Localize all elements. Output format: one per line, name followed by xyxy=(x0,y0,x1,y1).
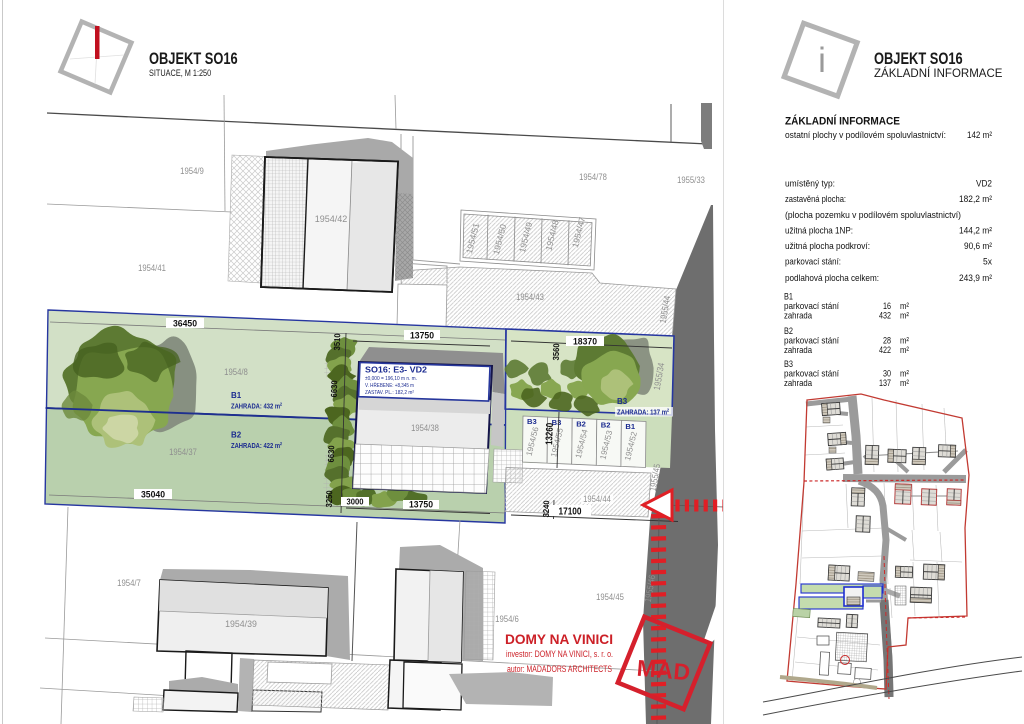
svg-text:ZAHRADA: 137 m²: ZAHRADA: 137 m² xyxy=(617,408,669,417)
svg-text:ZAHRADA: 432 m²: ZAHRADA: 432 m² xyxy=(231,402,282,411)
svg-text:3000: 3000 xyxy=(347,497,364,507)
svg-text:5x: 5x xyxy=(983,257,992,267)
svg-text:422: 422 xyxy=(879,345,891,355)
svg-text:ZASTAV. PL.: 182,2 m²: ZASTAV. PL.: 182,2 m² xyxy=(365,390,414,396)
svg-text:±0,000 = 196,10 m n. m.: ±0,000 = 196,10 m n. m. xyxy=(365,376,417,382)
svg-text:B2: B2 xyxy=(784,326,793,336)
svg-text:zahrada: zahrada xyxy=(784,378,813,388)
svg-text:i: i xyxy=(818,41,826,80)
svg-text:(plocha pozemku v podílovém sp: (plocha pozemku v podílovém spoluvlastni… xyxy=(785,210,961,220)
svg-text:B2: B2 xyxy=(231,431,242,440)
svg-text:VD2: VD2 xyxy=(976,179,992,189)
svg-text:B2: B2 xyxy=(576,419,586,428)
svg-text:B3: B3 xyxy=(527,417,537,426)
svg-text:17100: 17100 xyxy=(559,506,582,518)
svg-text:1954/42: 1954/42 xyxy=(315,214,348,224)
svg-text:m²: m² xyxy=(900,301,909,311)
svg-text:90,6 m²: 90,6 m² xyxy=(964,241,992,251)
svg-text:13750: 13750 xyxy=(409,500,433,510)
svg-text:30: 30 xyxy=(883,369,891,379)
svg-text:ZAHRADA: 422 m²: ZAHRADA: 422 m² xyxy=(231,441,282,450)
svg-text:m²: m² xyxy=(900,345,909,355)
svg-text:1954/6: 1954/6 xyxy=(495,614,519,624)
svg-text:13750: 13750 xyxy=(410,331,434,341)
svg-text:B3: B3 xyxy=(784,359,793,369)
svg-text:B2: B2 xyxy=(601,421,611,430)
svg-text:13260: 13260 xyxy=(544,422,556,445)
svg-text:1954/39: 1954/39 xyxy=(225,619,257,629)
svg-text:DOMY NA VINICI: DOMY NA VINICI xyxy=(505,632,613,647)
svg-text:m²: m² xyxy=(900,336,909,346)
svg-text:zahrada: zahrada xyxy=(784,345,813,355)
svg-text:parkovací stání:: parkovací stání: xyxy=(785,257,841,267)
svg-text:35040: 35040 xyxy=(141,490,165,500)
svg-text:B1: B1 xyxy=(784,292,793,302)
svg-text:1954/9: 1954/9 xyxy=(180,166,204,176)
svg-text:zastavěná plocha:: zastavěná plocha: xyxy=(785,194,846,204)
svg-text:1955/33: 1955/33 xyxy=(677,175,705,185)
svg-text:6630: 6630 xyxy=(326,445,337,463)
svg-text:parkovací stání: parkovací stání xyxy=(784,301,839,311)
svg-text:432: 432 xyxy=(879,311,891,321)
svg-text:1954/44: 1954/44 xyxy=(583,494,611,504)
svg-text:zahrada: zahrada xyxy=(784,311,813,321)
svg-text:ZÁKLADNÍ INFORMACE: ZÁKLADNÍ INFORMACE xyxy=(785,115,900,128)
svg-text:m²: m² xyxy=(900,311,909,321)
svg-text:3250: 3250 xyxy=(324,490,335,508)
svg-text:182,2 m²: 182,2 m² xyxy=(959,194,992,204)
svg-text:1954/8: 1954/8 xyxy=(224,367,248,377)
svg-text:3560: 3560 xyxy=(551,343,562,361)
svg-text:1954/41: 1954/41 xyxy=(138,263,166,273)
svg-text:V. HŘEBENE: +8,345 m: V. HŘEBENE: +8,345 m xyxy=(365,381,415,389)
svg-text:ostatní plochy v podílovém spo: ostatní plochy v podílovém spoluvlastnic… xyxy=(785,130,946,140)
svg-text:6630: 6630 xyxy=(329,380,340,398)
svg-text:užitná plocha 1NP:: užitná plocha 1NP: xyxy=(785,226,853,236)
svg-text:1954/38: 1954/38 xyxy=(411,423,439,433)
svg-text:B1: B1 xyxy=(231,391,242,400)
svg-text:28: 28 xyxy=(883,336,891,346)
svg-text:36450: 36450 xyxy=(173,319,197,329)
svg-text:1954/7: 1954/7 xyxy=(117,578,141,588)
svg-text:MAD: MAD xyxy=(636,655,692,686)
svg-text:144,2 m²: 144,2 m² xyxy=(959,226,992,236)
svg-text:umístěný typ:: umístěný typ: xyxy=(785,179,835,189)
svg-text:podlahová plocha celkem:: podlahová plocha celkem: xyxy=(785,273,879,283)
svg-text:18370: 18370 xyxy=(573,337,597,347)
svg-text:m²: m² xyxy=(900,378,909,388)
svg-text:autor: MADADORS ARCHITECTS: autor: MADADORS ARCHITECTS xyxy=(507,664,612,674)
svg-text:m²: m² xyxy=(900,369,909,379)
svg-text:3510: 3510 xyxy=(332,333,343,351)
svg-text:parkovací stání: parkovací stání xyxy=(784,336,839,346)
svg-text:137: 137 xyxy=(879,378,891,388)
svg-text:B3: B3 xyxy=(617,397,628,406)
svg-text:243,9 m²: 243,9 m² xyxy=(959,273,992,283)
svg-text:1954/78: 1954/78 xyxy=(579,172,607,182)
svg-text:1954/45: 1954/45 xyxy=(596,592,624,602)
svg-text:1954/43: 1954/43 xyxy=(516,292,544,302)
svg-text:parkovací stání: parkovací stání xyxy=(784,369,839,379)
svg-text:investor: DOMY NA VINICI, s. r: investor: DOMY NA VINICI, s. r. o. xyxy=(506,649,613,659)
svg-text:1954/37: 1954/37 xyxy=(169,447,197,457)
svg-text:142 m²: 142 m² xyxy=(967,130,992,140)
svg-text:16: 16 xyxy=(883,301,891,311)
svg-text:užitná plocha podkroví:: užitná plocha podkroví: xyxy=(785,241,870,251)
svg-text:SO16: E3- VD2: SO16: E3- VD2 xyxy=(365,365,427,375)
svg-text:B1: B1 xyxy=(625,422,635,431)
